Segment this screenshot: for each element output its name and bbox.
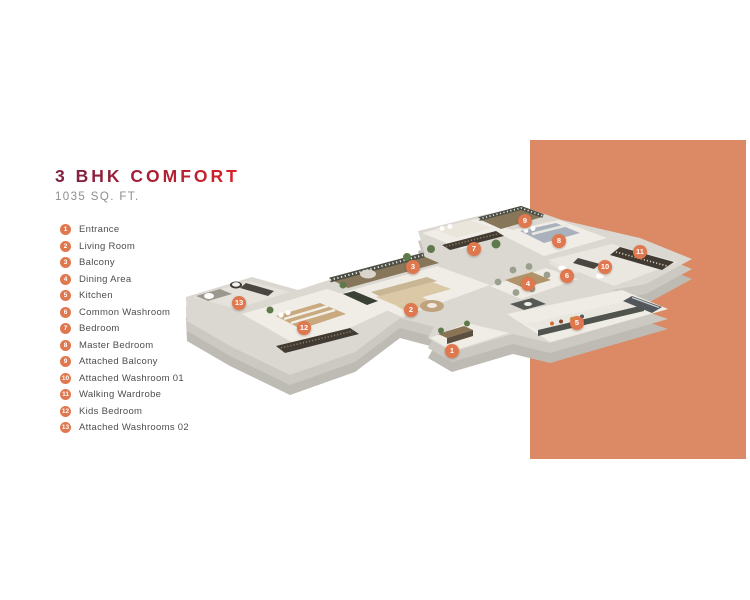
- floor-plan-render: [180, 200, 710, 410]
- legend-label: Kitchen: [79, 290, 113, 301]
- legend-item: 8Master Bedroom: [60, 340, 189, 351]
- legend-item: 9Attached Balcony: [60, 356, 189, 367]
- plan-marker-walking-wardrobe: 11: [633, 245, 647, 259]
- legend-item: 13Attached Washrooms 02: [60, 422, 189, 433]
- legend-number-badge: 2: [60, 241, 71, 252]
- plan-marker-kitchen: 5: [570, 316, 584, 330]
- legend-label: Bedroom: [79, 323, 120, 334]
- legend-label: Common Washroom: [79, 307, 170, 318]
- legend-number-badge: 8: [60, 340, 71, 351]
- legend-label: Entrance: [79, 224, 119, 235]
- plan-marker-attached-washroom-01: 10: [598, 260, 612, 274]
- plan-marker-balcony: 3: [406, 260, 420, 274]
- legend-number-badge: 3: [60, 257, 71, 268]
- legend-label: Attached Washroom 01: [79, 373, 184, 384]
- legend-number-badge: 10: [60, 373, 71, 384]
- legend-number-badge: 13: [60, 422, 71, 433]
- room-legend: 1Entrance 2Living Room 3Balcony 4Dining …: [60, 224, 189, 433]
- plan-marker-entrance: 1: [445, 344, 459, 358]
- plan-marker-bedroom: 7: [467, 242, 481, 256]
- plan-marker-living-room: 2: [404, 303, 418, 317]
- legend-item: 2Living Room: [60, 241, 189, 252]
- legend-number-badge: 11: [60, 389, 71, 400]
- legend-label: Balcony: [79, 257, 115, 268]
- plan-marker-common-washroom: 6: [560, 269, 574, 283]
- brochure-page: 3 BHK COMFORT 1035 SQ. FT. 1Entrance 2Li…: [0, 0, 750, 600]
- legend-label: Master Bedroom: [79, 340, 153, 351]
- plan-marker-dining-area: 4: [521, 277, 535, 291]
- legend-number-badge: 4: [60, 274, 71, 285]
- page-title: 3 BHK COMFORT: [55, 166, 240, 187]
- legend-number-badge: 12: [60, 406, 71, 417]
- legend-item: 6Common Washroom: [60, 307, 189, 318]
- legend-label: Attached Balcony: [79, 356, 158, 367]
- legend-label: Kids Bedroom: [79, 406, 142, 417]
- legend-item: 12Kids Bedroom: [60, 406, 189, 417]
- legend-item: 3Balcony: [60, 257, 189, 268]
- area-subtitle: 1035 SQ. FT.: [55, 191, 240, 203]
- plan-marker-attached-washrooms-02: 13: [232, 296, 246, 310]
- legend-item: 4Dining Area: [60, 274, 189, 285]
- legend-number-badge: 7: [60, 323, 71, 334]
- legend-number-badge: 5: [60, 290, 71, 301]
- plan-marker-master-bedroom: 8: [552, 234, 566, 248]
- legend-label: Dining Area: [79, 274, 131, 285]
- legend-label: Attached Washrooms 02: [79, 422, 189, 433]
- plan-marker-attached-balcony: 9: [518, 214, 532, 228]
- floor-plan-3d: 1 2 3 4 5 6 7 8 9 10 11 12 13: [180, 200, 710, 410]
- legend-number-badge: 9: [60, 356, 71, 367]
- title-block: 3 BHK COMFORT 1035 SQ. FT.: [55, 166, 240, 203]
- legend-item: 11Walking Wardrobe: [60, 389, 189, 400]
- legend-item: 5Kitchen: [60, 290, 189, 301]
- legend-label: Living Room: [79, 241, 135, 252]
- legend-number-badge: 1: [60, 224, 71, 235]
- legend-label: Walking Wardrobe: [79, 389, 161, 400]
- legend-item: 10Attached Washroom 01: [60, 373, 189, 384]
- legend-number-badge: 6: [60, 307, 71, 318]
- legend-item: 7Bedroom: [60, 323, 189, 334]
- plan-marker-kids-bedroom: 12: [297, 321, 311, 335]
- legend-item: 1Entrance: [60, 224, 189, 235]
